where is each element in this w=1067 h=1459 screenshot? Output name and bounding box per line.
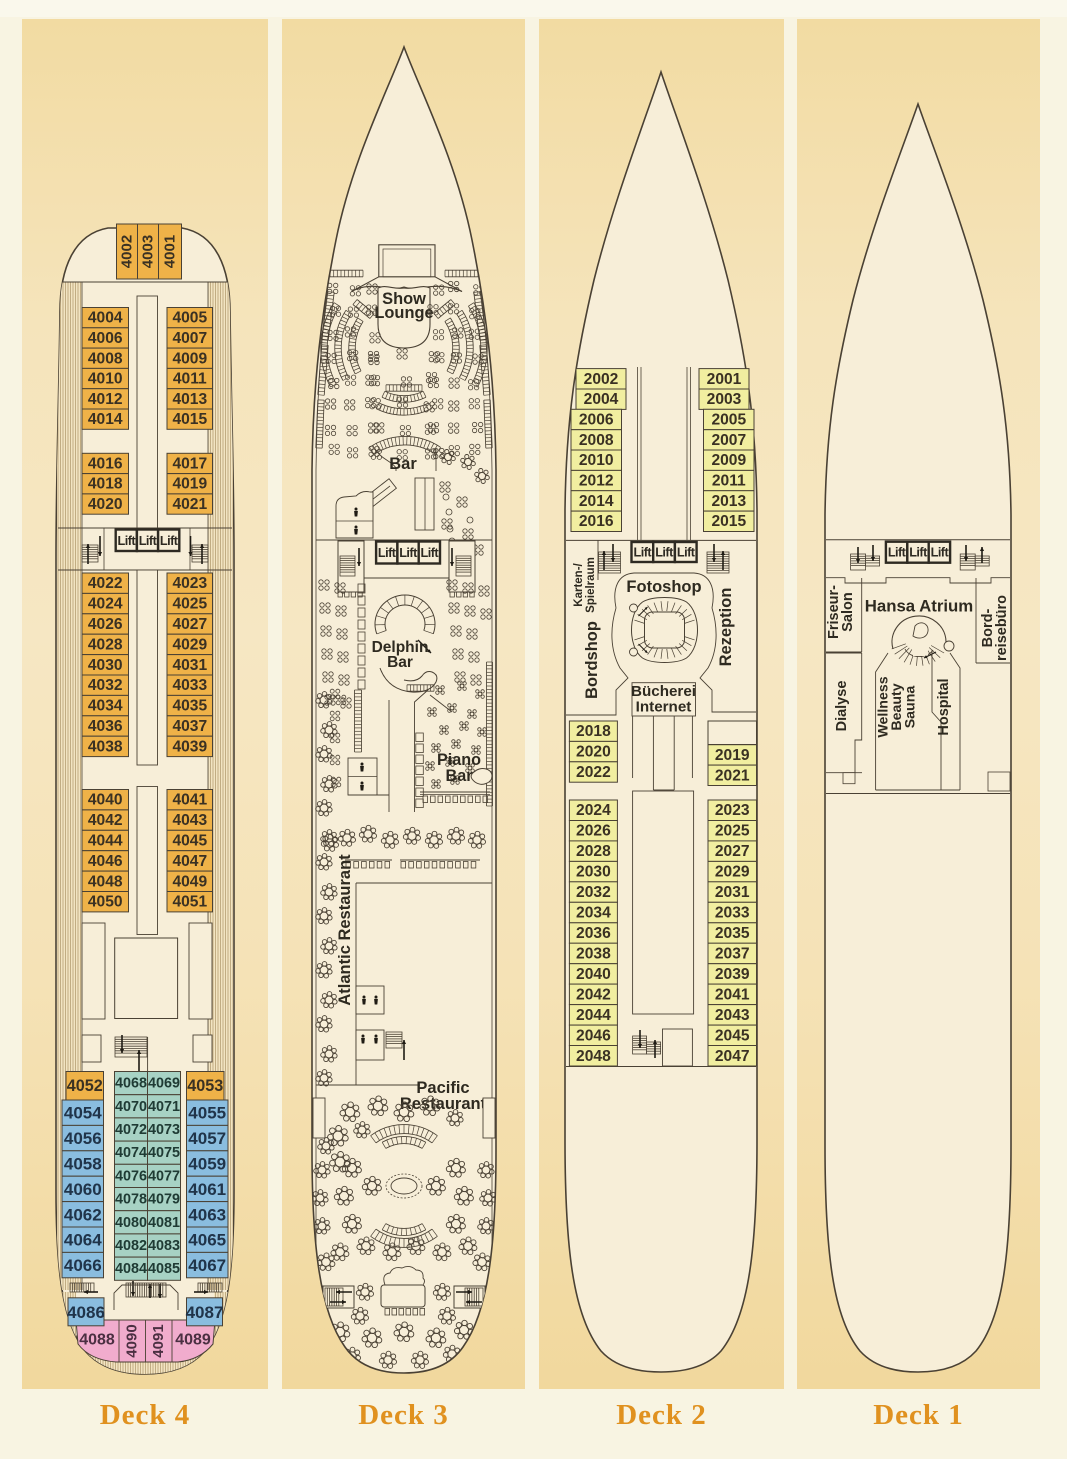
svg-text:4019: 4019 (172, 476, 207, 493)
svg-text:2047: 2047 (715, 1048, 750, 1065)
svg-text:Lift: Lift (655, 546, 674, 560)
svg-text:2041: 2041 (715, 986, 750, 1003)
svg-text:4047: 4047 (172, 853, 207, 870)
svg-text:2021: 2021 (715, 767, 750, 784)
svg-text:Lift: Lift (399, 546, 418, 560)
svg-text:2038: 2038 (576, 946, 611, 963)
svg-text:4080: 4080 (115, 1215, 147, 1231)
svg-text:4017: 4017 (172, 455, 207, 472)
svg-text:Lounge: Lounge (374, 304, 433, 322)
svg-text:4028: 4028 (88, 636, 123, 653)
svg-text:2015: 2015 (711, 513, 746, 530)
svg-text:4020: 4020 (88, 496, 123, 513)
svg-text:Lift: Lift (139, 534, 158, 548)
svg-text:Spielraum: Spielraum (585, 557, 597, 613)
svg-text:4049: 4049 (172, 873, 207, 890)
svg-text:4077: 4077 (148, 1168, 180, 1184)
svg-text:4058: 4058 (64, 1155, 102, 1174)
svg-text:4091: 4091 (150, 1324, 167, 1357)
svg-text:4023: 4023 (172, 575, 207, 592)
svg-text:4040: 4040 (88, 792, 123, 809)
svg-text:4082: 4082 (115, 1238, 147, 1254)
svg-text:4085: 4085 (148, 1261, 180, 1277)
svg-text:Bar: Bar (446, 767, 474, 785)
svg-text:4076: 4076 (115, 1168, 147, 1184)
svg-text:4033: 4033 (172, 677, 207, 694)
svg-text:2018: 2018 (576, 723, 611, 740)
svg-text:4074: 4074 (115, 1145, 147, 1161)
svg-text:2019: 2019 (715, 747, 750, 764)
svg-text:2034: 2034 (576, 905, 611, 922)
svg-text:2027: 2027 (715, 843, 750, 860)
svg-text:4069: 4069 (148, 1076, 180, 1092)
svg-text:2024: 2024 (576, 802, 611, 819)
svg-text:4010: 4010 (88, 371, 123, 388)
svg-text:4016: 4016 (88, 455, 123, 472)
svg-text:4005: 4005 (172, 310, 207, 327)
svg-text:Lift: Lift (118, 534, 137, 548)
svg-text:Karten-/: Karten-/ (573, 562, 585, 606)
svg-text:Hospital: Hospital (936, 678, 952, 735)
svg-text:2013: 2013 (711, 493, 746, 510)
svg-text:2026: 2026 (576, 823, 611, 840)
svg-text:4060: 4060 (64, 1180, 102, 1199)
svg-text:4012: 4012 (88, 391, 123, 408)
svg-text:4070: 4070 (115, 1099, 147, 1115)
svg-text:4013: 4013 (172, 391, 207, 408)
svg-text:4067: 4067 (188, 1256, 226, 1275)
svg-text:4001: 4001 (162, 235, 179, 268)
svg-text:2012: 2012 (579, 473, 614, 490)
svg-text:Internet: Internet (636, 699, 692, 716)
svg-text:Lift: Lift (160, 534, 179, 548)
svg-text:4063: 4063 (188, 1205, 226, 1224)
svg-text:4004: 4004 (88, 310, 123, 327)
svg-text:2010: 2010 (579, 452, 614, 469)
svg-text:2016: 2016 (579, 513, 614, 530)
svg-text:2014: 2014 (579, 493, 614, 510)
svg-text:2043: 2043 (715, 1007, 750, 1024)
svg-text:2006: 2006 (579, 412, 614, 429)
svg-text:Lift: Lift (931, 546, 950, 560)
svg-text:Restaurant: Restaurant (400, 1095, 487, 1113)
svg-text:4078: 4078 (115, 1192, 147, 1208)
svg-text:4052: 4052 (67, 1077, 103, 1095)
svg-text:4045: 4045 (172, 833, 207, 850)
svg-text:4022: 4022 (88, 575, 123, 592)
svg-text:4050: 4050 (88, 894, 123, 911)
svg-text:Bar: Bar (387, 654, 413, 671)
svg-text:2002: 2002 (584, 371, 619, 388)
svg-text:Salon: Salon (840, 592, 856, 631)
svg-text:2003: 2003 (707, 391, 742, 408)
svg-text:2048: 2048 (576, 1048, 611, 1065)
svg-text:4008: 4008 (88, 350, 123, 367)
svg-text:4081: 4081 (148, 1215, 180, 1231)
svg-text:2044: 2044 (576, 1007, 611, 1024)
svg-text:4015: 4015 (172, 411, 207, 428)
svg-text:2040: 2040 (576, 966, 611, 983)
svg-text:Bar: Bar (389, 455, 417, 473)
svg-text:2032: 2032 (576, 884, 611, 901)
svg-text:4034: 4034 (88, 698, 123, 715)
svg-text:4014: 4014 (88, 411, 123, 428)
svg-text:Sauna: Sauna (903, 686, 919, 729)
svg-text:2039: 2039 (715, 966, 750, 983)
svg-text:4003: 4003 (140, 235, 157, 268)
svg-text:2028: 2028 (576, 843, 611, 860)
svg-text:4072: 4072 (115, 1122, 147, 1138)
svg-text:Rezeption: Rezeption (717, 588, 735, 667)
svg-text:4051: 4051 (172, 894, 207, 911)
svg-text:Bücherei: Bücherei (631, 683, 696, 700)
svg-text:4064: 4064 (64, 1231, 102, 1250)
svg-text:4006: 4006 (88, 330, 123, 347)
svg-text:4089: 4089 (175, 1332, 211, 1349)
svg-text:Lift: Lift (378, 546, 397, 560)
svg-text:4018: 4018 (88, 476, 123, 493)
svg-text:4084: 4084 (115, 1261, 147, 1277)
svg-text:4032: 4032 (88, 677, 123, 694)
svg-text:4035: 4035 (172, 698, 207, 715)
svg-text:2042: 2042 (576, 986, 611, 1003)
svg-text:2025: 2025 (715, 823, 750, 840)
svg-text:4065: 4065 (188, 1231, 226, 1250)
svg-text:2023: 2023 (715, 802, 750, 819)
svg-text:4043: 4043 (172, 812, 207, 829)
svg-text:2007: 2007 (711, 432, 746, 449)
svg-text:Dialyse: Dialyse (834, 681, 850, 732)
svg-text:4030: 4030 (88, 657, 123, 674)
svg-text:4021: 4021 (172, 496, 207, 513)
svg-text:4090: 4090 (124, 1324, 141, 1357)
svg-text:4088: 4088 (79, 1332, 115, 1349)
svg-text:4027: 4027 (172, 616, 207, 633)
svg-text:2022: 2022 (576, 764, 611, 781)
svg-text:2033: 2033 (715, 905, 750, 922)
svg-text:4079: 4079 (148, 1192, 180, 1208)
svg-text:2008: 2008 (579, 432, 614, 449)
svg-text:2001: 2001 (707, 371, 742, 388)
svg-text:4066: 4066 (64, 1256, 102, 1275)
svg-text:2029: 2029 (715, 864, 750, 881)
svg-text:2011: 2011 (712, 473, 746, 490)
svg-text:4036: 4036 (88, 718, 123, 735)
svg-text:4041: 4041 (172, 792, 207, 809)
svg-text:4046: 4046 (88, 853, 123, 870)
svg-text:2004: 2004 (584, 391, 619, 408)
svg-text:4083: 4083 (148, 1238, 180, 1254)
svg-text:Lift: Lift (634, 546, 653, 560)
svg-text:4044: 4044 (88, 833, 123, 850)
svg-text:4086: 4086 (67, 1303, 105, 1322)
svg-text:4054: 4054 (64, 1104, 102, 1123)
svg-text:Hansa Atrium: Hansa Atrium (865, 597, 973, 616)
svg-text:4071: 4071 (148, 1099, 180, 1115)
svg-text:4062: 4062 (64, 1205, 102, 1224)
svg-text:4007: 4007 (172, 330, 207, 347)
svg-text:4029: 4029 (172, 636, 207, 653)
svg-text:4038: 4038 (88, 738, 123, 755)
svg-text:2045: 2045 (715, 1027, 750, 1044)
svg-text:Lift: Lift (909, 546, 928, 560)
svg-text:reisebüro: reisebüro (994, 595, 1010, 661)
svg-text:2030: 2030 (576, 864, 611, 881)
svg-text:4056: 4056 (64, 1129, 102, 1148)
svg-text:2031: 2031 (715, 884, 750, 901)
svg-text:4042: 4042 (88, 812, 123, 829)
svg-text:4002: 4002 (119, 235, 136, 268)
svg-text:4025: 4025 (172, 596, 207, 613)
svg-text:4068: 4068 (115, 1076, 147, 1092)
svg-text:2046: 2046 (576, 1027, 611, 1044)
svg-text:Atlantic Restaurant: Atlantic Restaurant (336, 854, 354, 1006)
svg-text:Lift: Lift (888, 546, 907, 560)
svg-text:2020: 2020 (576, 744, 611, 761)
svg-text:4075: 4075 (148, 1145, 180, 1161)
svg-text:2005: 2005 (711, 412, 746, 429)
svg-text:4031: 4031 (172, 657, 207, 674)
svg-text:4055: 4055 (188, 1104, 226, 1123)
svg-text:2036: 2036 (576, 925, 611, 942)
svg-text:2037: 2037 (715, 946, 750, 963)
svg-text:Lift: Lift (677, 546, 696, 560)
svg-text:4059: 4059 (188, 1155, 226, 1174)
svg-text:4073: 4073 (148, 1122, 180, 1138)
svg-text:4048: 4048 (88, 873, 123, 890)
svg-text:4039: 4039 (172, 738, 207, 755)
svg-text:Bordshop: Bordshop (583, 621, 601, 699)
svg-text:4037: 4037 (172, 718, 207, 735)
svg-text:2009: 2009 (711, 452, 746, 469)
svg-text:4026: 4026 (88, 616, 123, 633)
svg-text:4053: 4053 (187, 1077, 223, 1095)
svg-text:4009: 4009 (172, 350, 207, 367)
svg-text:2035: 2035 (715, 925, 750, 942)
svg-text:4061: 4061 (188, 1180, 226, 1199)
svg-text:Fotoshop: Fotoshop (626, 578, 701, 596)
svg-text:Lift: Lift (421, 546, 440, 560)
svg-text:4087: 4087 (186, 1303, 224, 1322)
svg-text:4011: 4011 (173, 371, 207, 388)
svg-text:4057: 4057 (188, 1129, 226, 1148)
svg-text:4024: 4024 (88, 596, 123, 613)
